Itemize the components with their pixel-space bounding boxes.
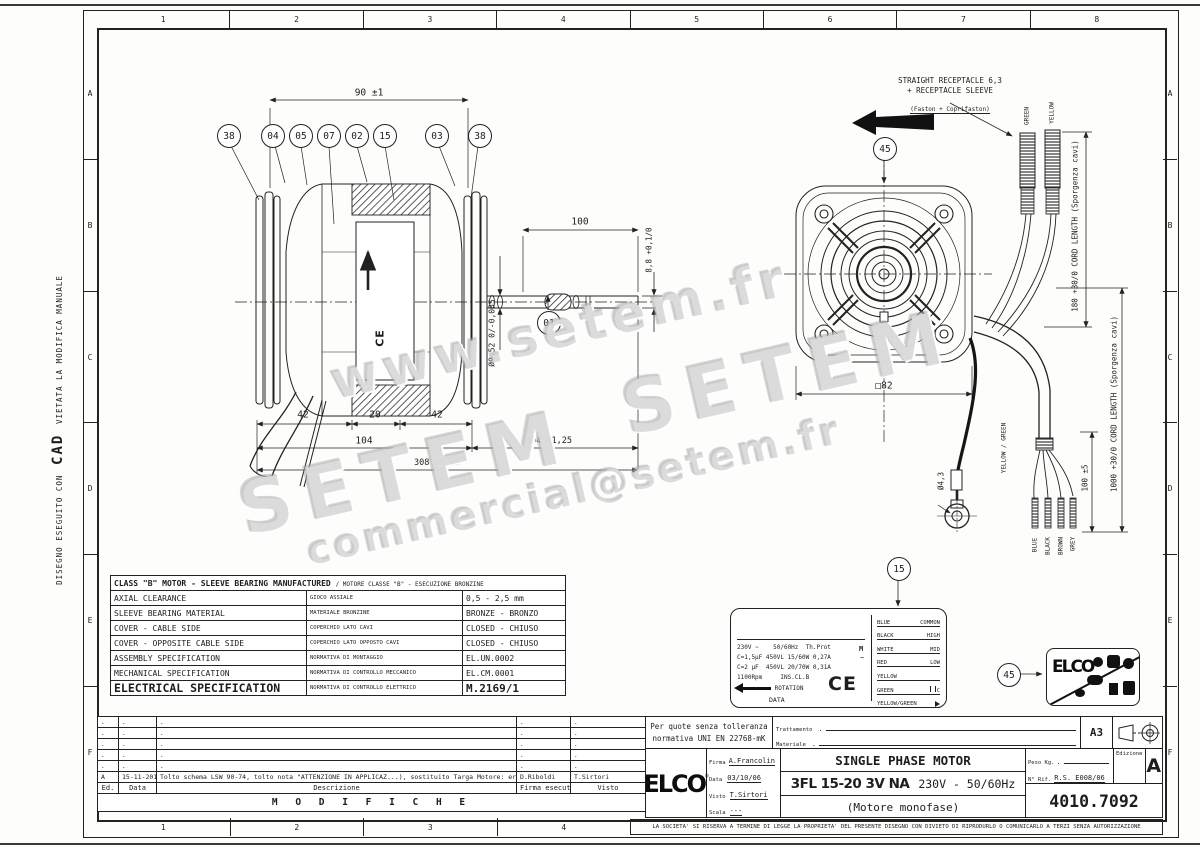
nameplate-blank-area: [737, 613, 865, 640]
scala-label: Scala: [709, 810, 726, 816]
wire-label-grey: GREY: [1070, 537, 1077, 551]
revision-row-a: A 15-11-2010 Tolto schema LSW 90-74, tol…: [98, 772, 646, 783]
material-value: .: [812, 740, 816, 748]
visto-value: T.Sirtori: [730, 791, 768, 800]
wire-tap: MID: [930, 647, 940, 653]
rev-cell: .: [119, 761, 157, 772]
wire-row: YELLOW/GREEN: [877, 695, 940, 709]
spec-it: MATERIALE BRONZINE: [307, 606, 463, 621]
modifiche-title: M O D I F I C H E: [98, 794, 646, 812]
nameplate-data-label: DATA: [769, 696, 785, 704]
wire-tap: HIGH: [927, 633, 940, 639]
drawing-number: 4010.7092: [1026, 783, 1162, 818]
table-row: ASSEMBLY SPECIFICATIONNORMATIVA DI MONTA…: [111, 651, 566, 666]
rev-cell: .: [571, 739, 646, 750]
wire-row: WHITEMID: [877, 640, 940, 654]
table-row: .....: [98, 717, 646, 728]
dim-4-3: Ø4,3: [937, 472, 946, 490]
wire-color: WHITE: [877, 647, 894, 653]
spec-val: BRONZE - BRONZO: [463, 606, 566, 621]
spec-table: CLASS "B" MOTOR - SLEEVE BEARING MANUFAC…: [110, 575, 566, 696]
receptacle-note-line2: + RECEPTACLE SLEEVE: [880, 86, 1020, 96]
rev-cell: .: [571, 761, 646, 772]
dim-100-strip: 100 ±5: [1081, 464, 1090, 491]
edition-value: A: [1145, 749, 1163, 783]
voltage-frequency: 230V - 50/60Hz: [918, 777, 1015, 791]
rev-header-visto: Visto: [571, 783, 646, 794]
rif-value: R.S. E008/06: [1054, 774, 1105, 783]
signature-block: FirmaA.Francolin Data03/10/06 VistoT.Sir…: [707, 749, 781, 818]
balloon-45-front: 45: [873, 137, 897, 161]
wire-label-black: BLACK: [1045, 537, 1052, 555]
ce-mark-nameplate: CE: [828, 673, 857, 695]
rev-cell: .: [517, 750, 571, 761]
spec-it: GIOCO ASSIALE: [307, 591, 463, 606]
table-row: .....: [98, 728, 646, 739]
dim-90: 90 ±1: [355, 88, 384, 99]
dim-cord-180: 180 +30/0 CORD LENGTH (Sporgenza cavi): [1071, 140, 1080, 312]
spec-en: COVER - CABLE SIDE: [111, 621, 307, 636]
rev-cell: .: [571, 750, 646, 761]
nameplate-line-voltage: 230V ~ 50/60Hz Th.Prot: [737, 643, 831, 653]
motor-symbol-ac: ~: [860, 654, 864, 662]
elco-logo-small: ELCO: [1052, 657, 1093, 677]
drawing-title-box: SINGLE PHASE MOTOR 3FL 15-20 3V NA 230V …: [781, 749, 1026, 818]
balloon-15-nameplate: 15: [887, 557, 911, 581]
wire-row: BLUECOMMON: [877, 613, 940, 627]
dim-308: 308 ±1,25: [414, 458, 460, 468]
wire-color: YELLOW: [877, 674, 897, 680]
modifiche-row: M O D I F I C H E: [98, 794, 646, 812]
balloon-01-shaft: 01: [537, 311, 561, 335]
motor-nameplate: 230V ~ 50/60Hz Th.Prot C=1,5µF 450VL 15/…: [730, 608, 947, 708]
balloon-15: 15: [373, 124, 397, 148]
treatment-rule: [826, 730, 1076, 731]
wire-tap: C: [937, 688, 940, 694]
nameplate-divider: [871, 615, 872, 701]
model-code: 3FL 15-20 3V NA: [791, 776, 910, 792]
wire-label-blue: BLUE: [1032, 538, 1039, 552]
nameplate-line-cap1: C=1,5µF 450VL 15/60W 0,27A: [737, 653, 831, 663]
rev-cell: .: [157, 717, 517, 728]
scala-value: ---: [730, 807, 743, 816]
rev-header-desc: Descrizione: [157, 783, 517, 794]
dim-8-8: 8,8 +0,1/0: [645, 227, 654, 272]
spec-en: MECHANICAL SPECIFICATION: [111, 666, 307, 681]
title-line1: SINGLE PHASE MOTOR: [781, 749, 1025, 772]
visto-row: VistoT.Sirtori: [707, 783, 780, 800]
rev-header-ed: Ed.: [98, 783, 119, 794]
table-row: AXIAL CLEARANCEGIOCO ASSIALE0,5 - 2,5 mm: [111, 591, 566, 606]
tolerance-note: Per quote senza tolleranza normativa UNI…: [646, 717, 773, 749]
receptacle-note: STRAIGHT RECEPTACLE 6,3 + RECEPTACLE SLE…: [880, 76, 1020, 116]
drawing-sheet: 1 2 3 4 5 6 7 8 1 2 3 4 LA SOCIETA' SI R…: [0, 0, 1200, 849]
peso-value: .: [1057, 758, 1061, 766]
motor-symbol-m: M: [859, 645, 863, 653]
weee-label: ELCO: [1046, 648, 1140, 706]
spec-val: CLOSED - CHIUSO: [463, 621, 566, 636]
nameplate-wiring: BLUECOMMON BLACKHIGH WHITEMID REDLOW YEL…: [877, 613, 940, 708]
spec-val: EL.CM.0001: [463, 666, 566, 681]
material-rule: [819, 745, 1076, 746]
spec-it: COPERCHIO LATO CAVI: [307, 621, 463, 636]
table-row: .....: [98, 739, 646, 750]
rev-header-firma: Firma esecutore: [517, 783, 571, 794]
dim-cord-1000: 1000 +30/0 CORD LENGTH (Sporgenza cavi): [1110, 316, 1119, 492]
wire-color: YELLOW/GREEN: [877, 701, 917, 707]
recycle-icon: [1093, 657, 1103, 667]
rev-cell: .: [157, 750, 517, 761]
peso-rule: [1064, 763, 1109, 764]
table-row: SLEEVE BEARING MATERIALMATERIALE BRONZIN…: [111, 606, 566, 621]
wire-color: GREEN: [877, 688, 894, 694]
spec-header-row: CLASS "B" MOTOR - SLEEVE BEARING MANUFAC…: [111, 576, 566, 591]
spec-en: SLEEVE BEARING MATERIAL: [111, 606, 307, 621]
wire-tap: LOW: [930, 660, 940, 666]
data-row: Data03/10/06: [707, 766, 780, 783]
rev-cell: .: [119, 739, 157, 750]
firma-label: Firma: [709, 760, 726, 766]
rev-cell: .: [157, 761, 517, 772]
wire-color: BLACK: [877, 633, 894, 639]
data-label: Data: [709, 777, 722, 783]
revision-header-row: Ed. Data Descrizione Firma esecutore Vis…: [98, 783, 646, 794]
wire-label-earth: YELLOW / GREEN: [1001, 423, 1008, 474]
spec-it: NORMATIVA DI MONTAGGIO: [307, 651, 463, 666]
balloon-45-weee: 45: [997, 663, 1021, 687]
edition-label: Edizione: [1116, 751, 1143, 783]
rotation-arrow-icon: [737, 687, 771, 690]
revision-table: ..... ..... ..... ..... ..... A 15-11-20…: [97, 716, 646, 812]
rev-cell: .: [119, 717, 157, 728]
rev-cell: .: [517, 717, 571, 728]
elco-logo: ELCO ®: [646, 749, 707, 818]
table-row: .....: [98, 761, 646, 772]
balloon-02: 02: [345, 124, 369, 148]
spec-it: COPERCHIO LATO OPPOSTO CAVI: [307, 636, 463, 651]
dim-20: 20: [369, 410, 380, 421]
wire-label-green: GREEN: [1024, 107, 1031, 125]
wheelie-bin-icon: [1123, 681, 1135, 695]
wire-row: YELLOW: [877, 667, 940, 681]
rotation-indicator: ROTATION: [737, 685, 804, 692]
wire-row: BLACKHIGH: [877, 627, 940, 641]
rev-cell: .: [517, 761, 571, 772]
rev-visto: T.Sirtori: [571, 772, 646, 783]
spec-val: CLOSED - CHIUSO: [463, 636, 566, 651]
balloon-05: 05: [289, 124, 313, 148]
spec-en: AXIAL CLEARANCE: [111, 591, 307, 606]
dim-104: 104: [355, 436, 372, 447]
wire-tap: COMMON: [920, 620, 940, 626]
elco-logo-text: ELCO: [643, 770, 705, 798]
spec-en: ASSEMBLY SPECIFICATION: [111, 651, 307, 666]
receptacle-note-line3: (Faston + Coprifaston): [910, 106, 989, 115]
dim-82-square: □82: [875, 381, 892, 392]
spec-val: 0,5 - 2,5 mm: [463, 591, 566, 606]
balloon-38-left: 38: [217, 124, 241, 148]
scala-row: Scala---: [707, 800, 780, 816]
balloon-04: 04: [261, 124, 285, 148]
rotation-label: ROTATION: [775, 685, 804, 692]
projection-symbol-icon: [1113, 717, 1162, 749]
rev-cell: .: [119, 750, 157, 761]
rev-cell: .: [157, 728, 517, 739]
nameplate-line-cap2: C=2 µF 450VL 20/70W 0,31A: [737, 663, 831, 673]
rev-firma: D.Riboldi: [517, 772, 571, 783]
title-line3: (Motore monofase): [781, 796, 1025, 818]
spec-it: NORMATIVA DI CONTROLLO MECCANICO: [307, 666, 463, 681]
tolerance-line2: normativa UNI EN 22768-mK: [653, 733, 766, 744]
dim-204: 204 ±1,25: [526, 436, 572, 446]
rev-cell: .: [98, 717, 119, 728]
spec-val: M.2169/1: [463, 681, 566, 696]
wire-label-yellow: YELLOW: [1049, 102, 1056, 124]
spec-en: ELECTRICAL SPECIFICATION: [111, 681, 307, 696]
title-line2: 3FL 15-20 3V NA 230V - 50/60Hz: [781, 772, 1025, 796]
visto-label: Visto: [709, 794, 726, 800]
tolerance-line1: Per quote senza tolleranza: [650, 721, 767, 732]
material-row: Materiale .: [773, 733, 1080, 748]
reference-box: N° Rif. R.S. E008/06: [1026, 766, 1114, 783]
wire-row: REDLOW: [877, 654, 940, 668]
rev-date: 15-11-2010: [119, 772, 157, 783]
balloon-03: 03: [425, 124, 449, 148]
rev-cell: .: [98, 750, 119, 761]
rev-cell: .: [571, 728, 646, 739]
balloon-38-right: 38: [468, 124, 492, 148]
wire-label-brown: BROWN: [1058, 537, 1065, 555]
spec-val: EL.UN.0002: [463, 651, 566, 666]
rev-cell: .: [98, 739, 119, 750]
rev-cell: .: [119, 728, 157, 739]
nameplate-line-rpm: 1100Rpm INS.CL.B: [737, 673, 831, 683]
table-row: MECHANICAL SPECIFICATIONNORMATIVA DI CON…: [111, 666, 566, 681]
wire-color: BLUE: [877, 620, 890, 626]
sheet-format: A3: [1081, 717, 1113, 749]
treatment-label: Trattamento: [776, 727, 812, 733]
balloon-07: 07: [317, 124, 341, 148]
rev-cell: .: [98, 761, 119, 772]
wire-color: RED: [877, 660, 887, 666]
firma-row: FirmaA.Francolin: [707, 749, 780, 766]
treatment-material-box: Trattamento . Materiale .: [773, 717, 1081, 749]
rev-cell: .: [517, 739, 571, 750]
rev-ed: A: [98, 772, 119, 783]
spec-it: NORMATIVA DI CONTROLLO ELETTRICO: [307, 681, 463, 696]
receptacle-note-line1: STRAIGHT RECEPTACLE 6,3: [880, 76, 1020, 86]
rev-cell: .: [98, 728, 119, 739]
firma-value: A.Francolin: [729, 757, 775, 766]
table-row: ELECTRICAL SPECIFICATIONNORMATIVA DI CON…: [111, 681, 566, 696]
dim-42-left: 42: [297, 410, 308, 421]
rev-cell: .: [517, 728, 571, 739]
nameplate-data-lines: 230V ~ 50/60Hz Th.Prot C=1,5µF 450VL 15/…: [737, 643, 831, 683]
waste-bin-icon: [1109, 683, 1118, 695]
dim-9-52: Ø9,52 0/-0,035: [488, 299, 497, 366]
treatment-value: .: [818, 725, 822, 733]
table-row: COVER - OPPOSITE CABLE SIDECOPERCHIO LAT…: [111, 636, 566, 651]
table-row: COVER - CABLE SIDECOPERCHIO LATO CAVICLO…: [111, 621, 566, 636]
earth-arrow-icon: [935, 701, 940, 707]
dim-42-right: 42: [431, 410, 442, 421]
wire-row: GREENC: [877, 681, 940, 695]
capacitor-icon: C: [930, 686, 940, 694]
material-label: Materiale: [776, 742, 806, 748]
data-value: 03/10/06: [727, 774, 761, 783]
table-row: .....: [98, 750, 646, 761]
spec-en: COVER - OPPOSITE CABLE SIDE: [111, 636, 307, 651]
edition-box: Edizione A: [1114, 749, 1162, 783]
spec-title-en: CLASS "B" MOTOR - SLEEVE BEARING MANUFAC…: [114, 579, 331, 588]
spec-title-it: / MOTORE CLASSE "B" - ESECUZIONE BRONZIN…: [336, 581, 484, 588]
title-block: Per quote senza tolleranza normativa UNI…: [645, 716, 1163, 818]
rev-header-data: Data: [119, 783, 157, 794]
treatment-row: Trattamento .: [773, 717, 1080, 733]
rev-cell: .: [571, 717, 646, 728]
weight-box: Peso Kg. .: [1026, 749, 1114, 766]
rev-description: Tolto schema LSW 90-74, tolto nota "ATTE…: [157, 772, 517, 783]
rev-cell: .: [157, 739, 517, 750]
ce-mark-side: CE: [374, 329, 387, 347]
dim-100: 100: [571, 217, 588, 228]
